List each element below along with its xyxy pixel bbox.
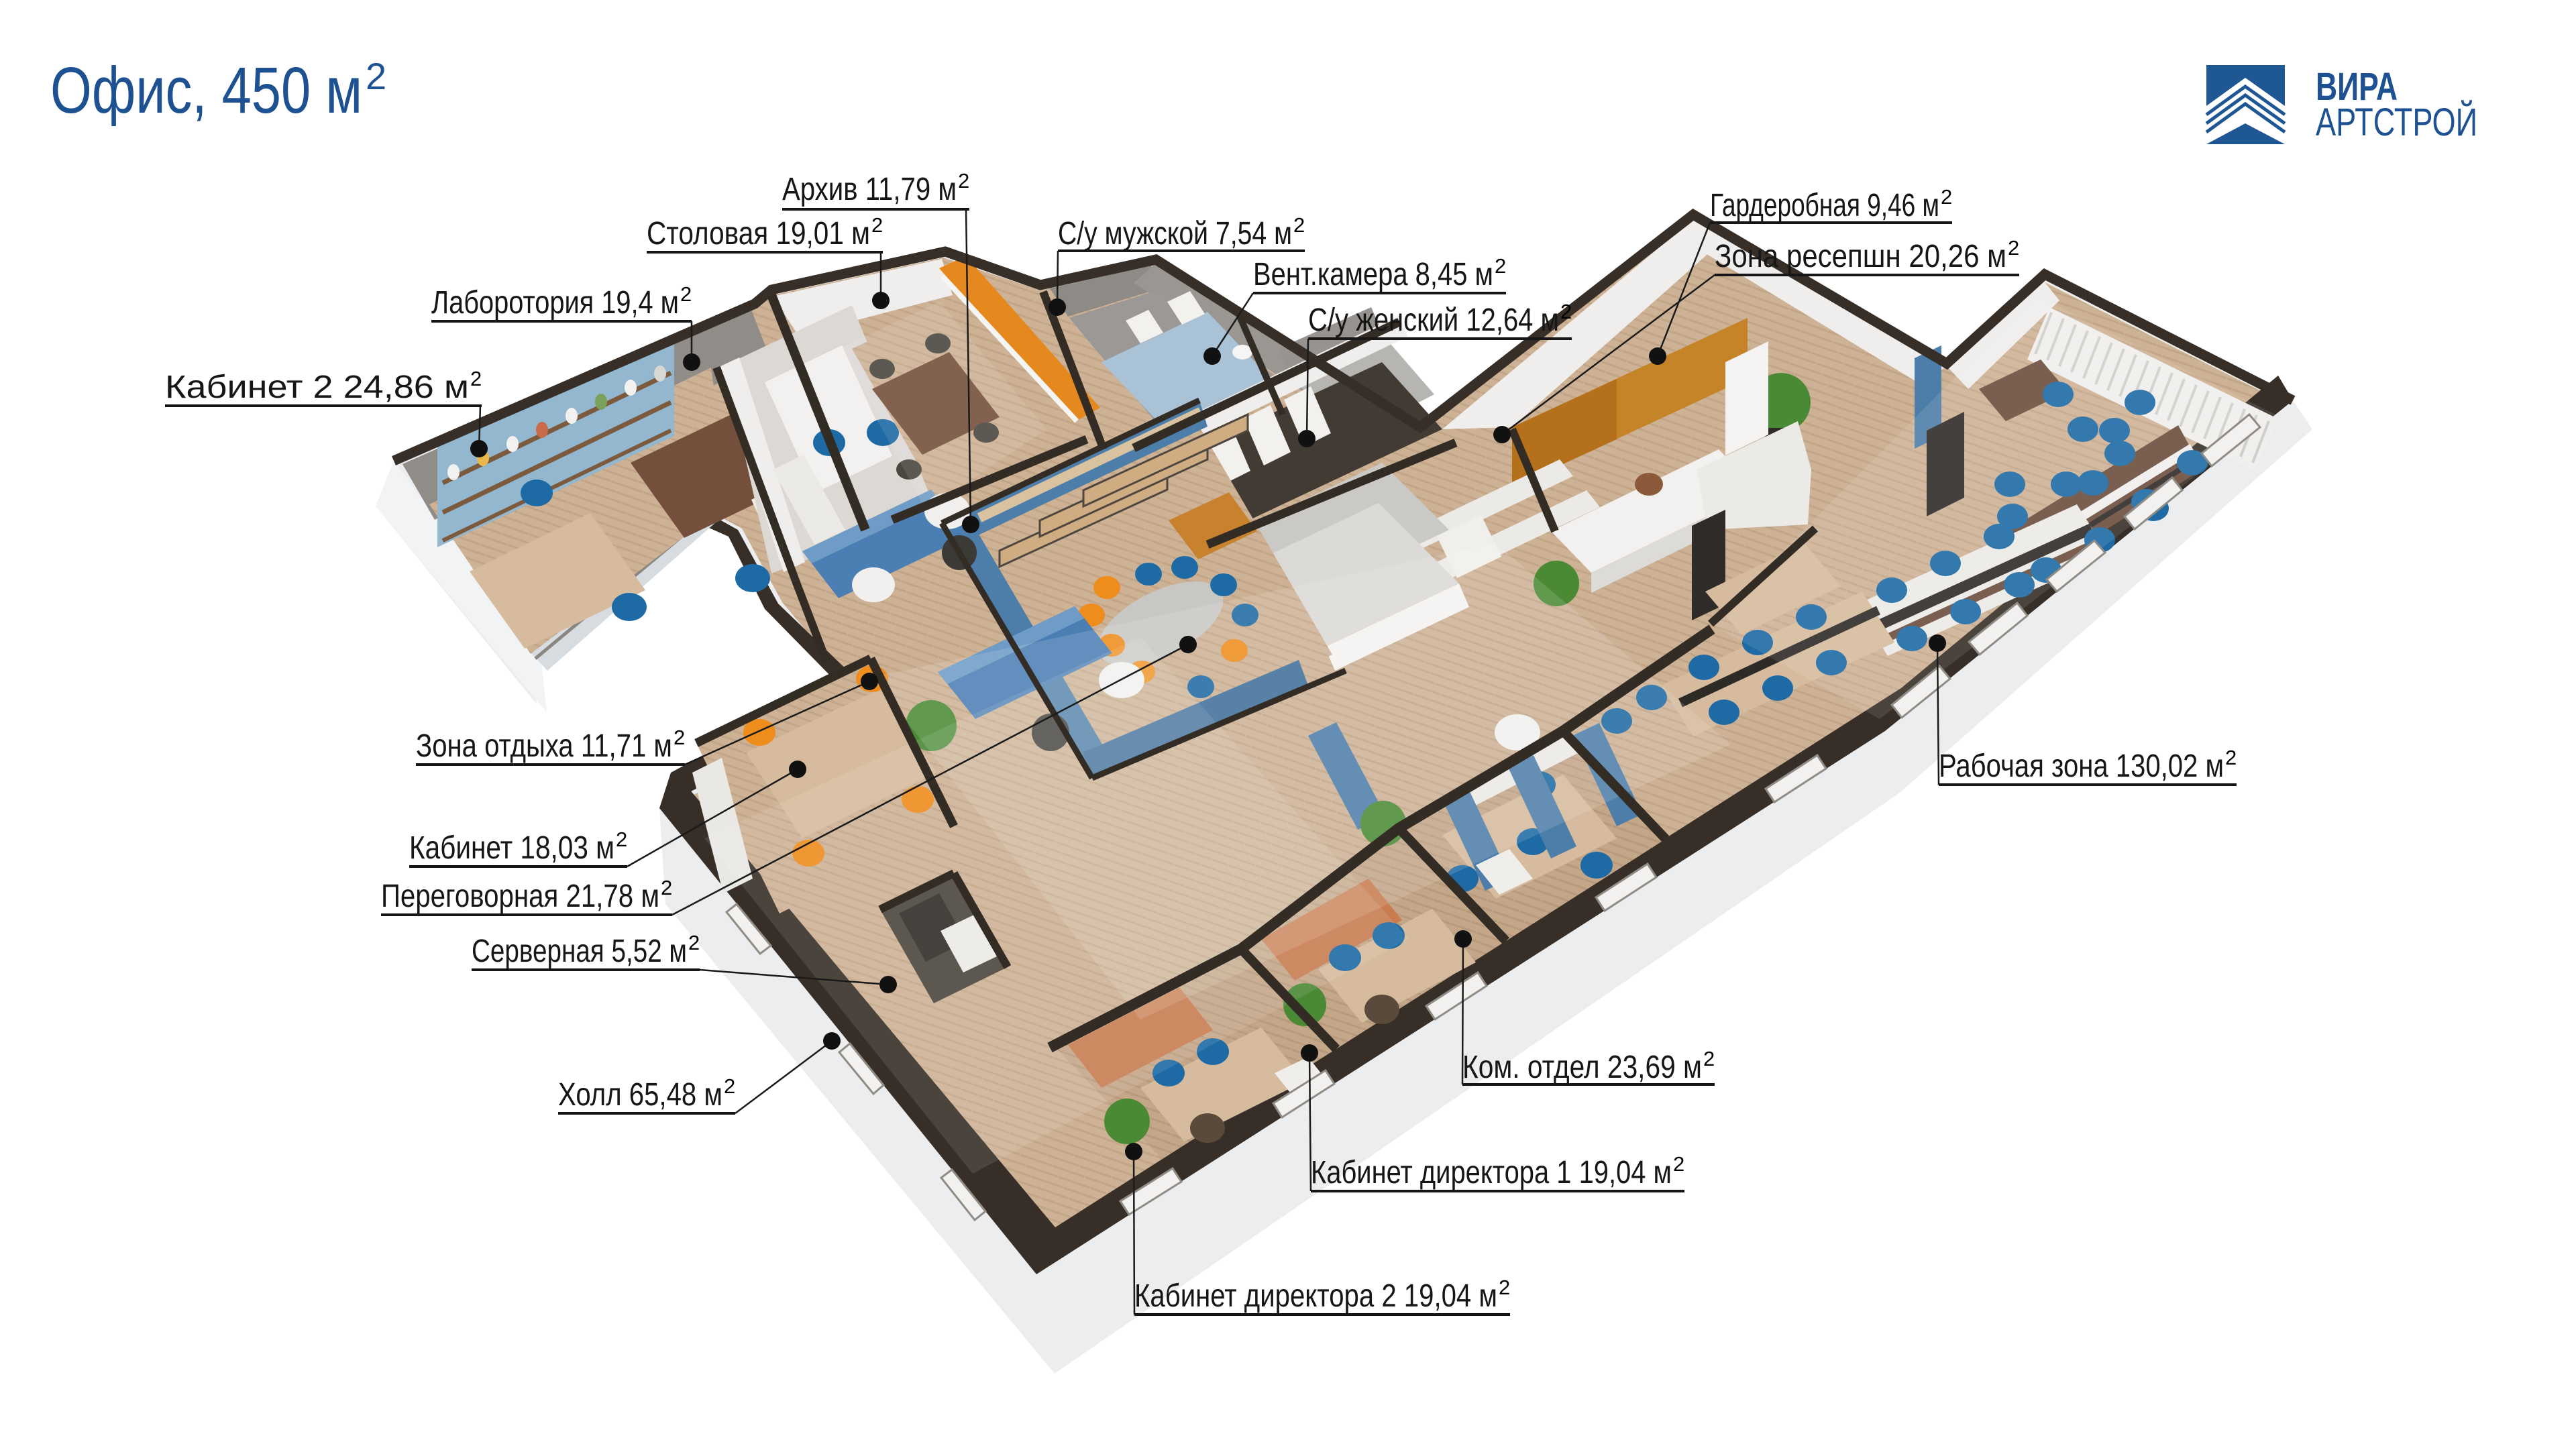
svg-text:2: 2 — [2225, 746, 2237, 769]
svg-text:Ком. отдел 23,69 м: Ком. отдел 23,69 м — [1462, 1050, 1702, 1085]
svg-text:2: 2 — [661, 876, 672, 899]
svg-text:Гардеробная 9,46 м: Гардеробная 9,46 м — [1710, 188, 1939, 223]
svg-text:2: 2 — [680, 282, 692, 306]
svg-text:2: 2 — [1941, 185, 1952, 209]
svg-text:Холл 65,48 м: Холл 65,48 м — [558, 1077, 722, 1113]
svg-text:Офис, 450 м: Офис, 450 м — [50, 54, 362, 127]
svg-text:2: 2 — [674, 726, 685, 749]
svg-text:2: 2 — [1499, 1276, 1510, 1299]
svg-text:Рабочая зона 130,02 м: Рабочая зона 130,02 м — [1939, 748, 2224, 784]
svg-text:Вент.камера 8,45 м: Вент.камера 8,45 м — [1253, 257, 1493, 292]
svg-text:Зона отдыха 11,71 м: Зона отдыха 11,71 м — [416, 728, 672, 764]
svg-text:Лаборотория 19,4 м: Лаборотория 19,4 м — [431, 285, 679, 321]
svg-text:С/у мужской 7,54 м: С/у мужской 7,54 м — [1058, 216, 1292, 252]
svg-text:Кабинет 18,03 м: Кабинет 18,03 м — [409, 830, 614, 866]
svg-text:АРТСТРОЙ: АРТСТРОЙ — [2316, 101, 2477, 144]
svg-text:2: 2 — [958, 169, 969, 192]
svg-text:Серверная 5,52 м: Серверная 5,52 м — [472, 934, 687, 969]
svg-text:Архив 11,79 м: Архив 11,79 м — [782, 172, 957, 207]
svg-text:Кабинет директора 2 19,04 м: Кабинет директора 2 19,04 м — [1134, 1278, 1497, 1314]
svg-text:2: 2 — [366, 55, 386, 97]
svg-text:2: 2 — [470, 367, 482, 390]
svg-text:2: 2 — [1703, 1047, 1715, 1070]
svg-text:Кабинет 2 24,86 м: Кабинет 2 24,86 м — [165, 370, 469, 405]
svg-text:Кабинет директора 1 19,04 м: Кабинет директора 1 19,04 м — [1311, 1155, 1672, 1190]
svg-text:2: 2 — [616, 828, 627, 851]
svg-text:2: 2 — [871, 213, 883, 237]
svg-text:2: 2 — [688, 931, 700, 954]
svg-text:2: 2 — [724, 1074, 735, 1098]
svg-text:2: 2 — [1293, 213, 1305, 237]
svg-text:Столовая 19,01 м: Столовая 19,01 м — [647, 216, 870, 252]
svg-text:Переговорная 21,78 м: Переговорная 21,78 м — [381, 879, 659, 914]
svg-text:2: 2 — [1495, 254, 1506, 278]
svg-text:2: 2 — [2008, 236, 2019, 260]
svg-text:С/у женский 12,64 м: С/у женский 12,64 м — [1308, 302, 1559, 338]
svg-text:Зона ресепшн 20,26 м: Зона ресепшн 20,26 м — [1715, 239, 2006, 274]
svg-text:2: 2 — [1560, 300, 1572, 323]
svg-text:2: 2 — [1673, 1152, 1684, 1176]
